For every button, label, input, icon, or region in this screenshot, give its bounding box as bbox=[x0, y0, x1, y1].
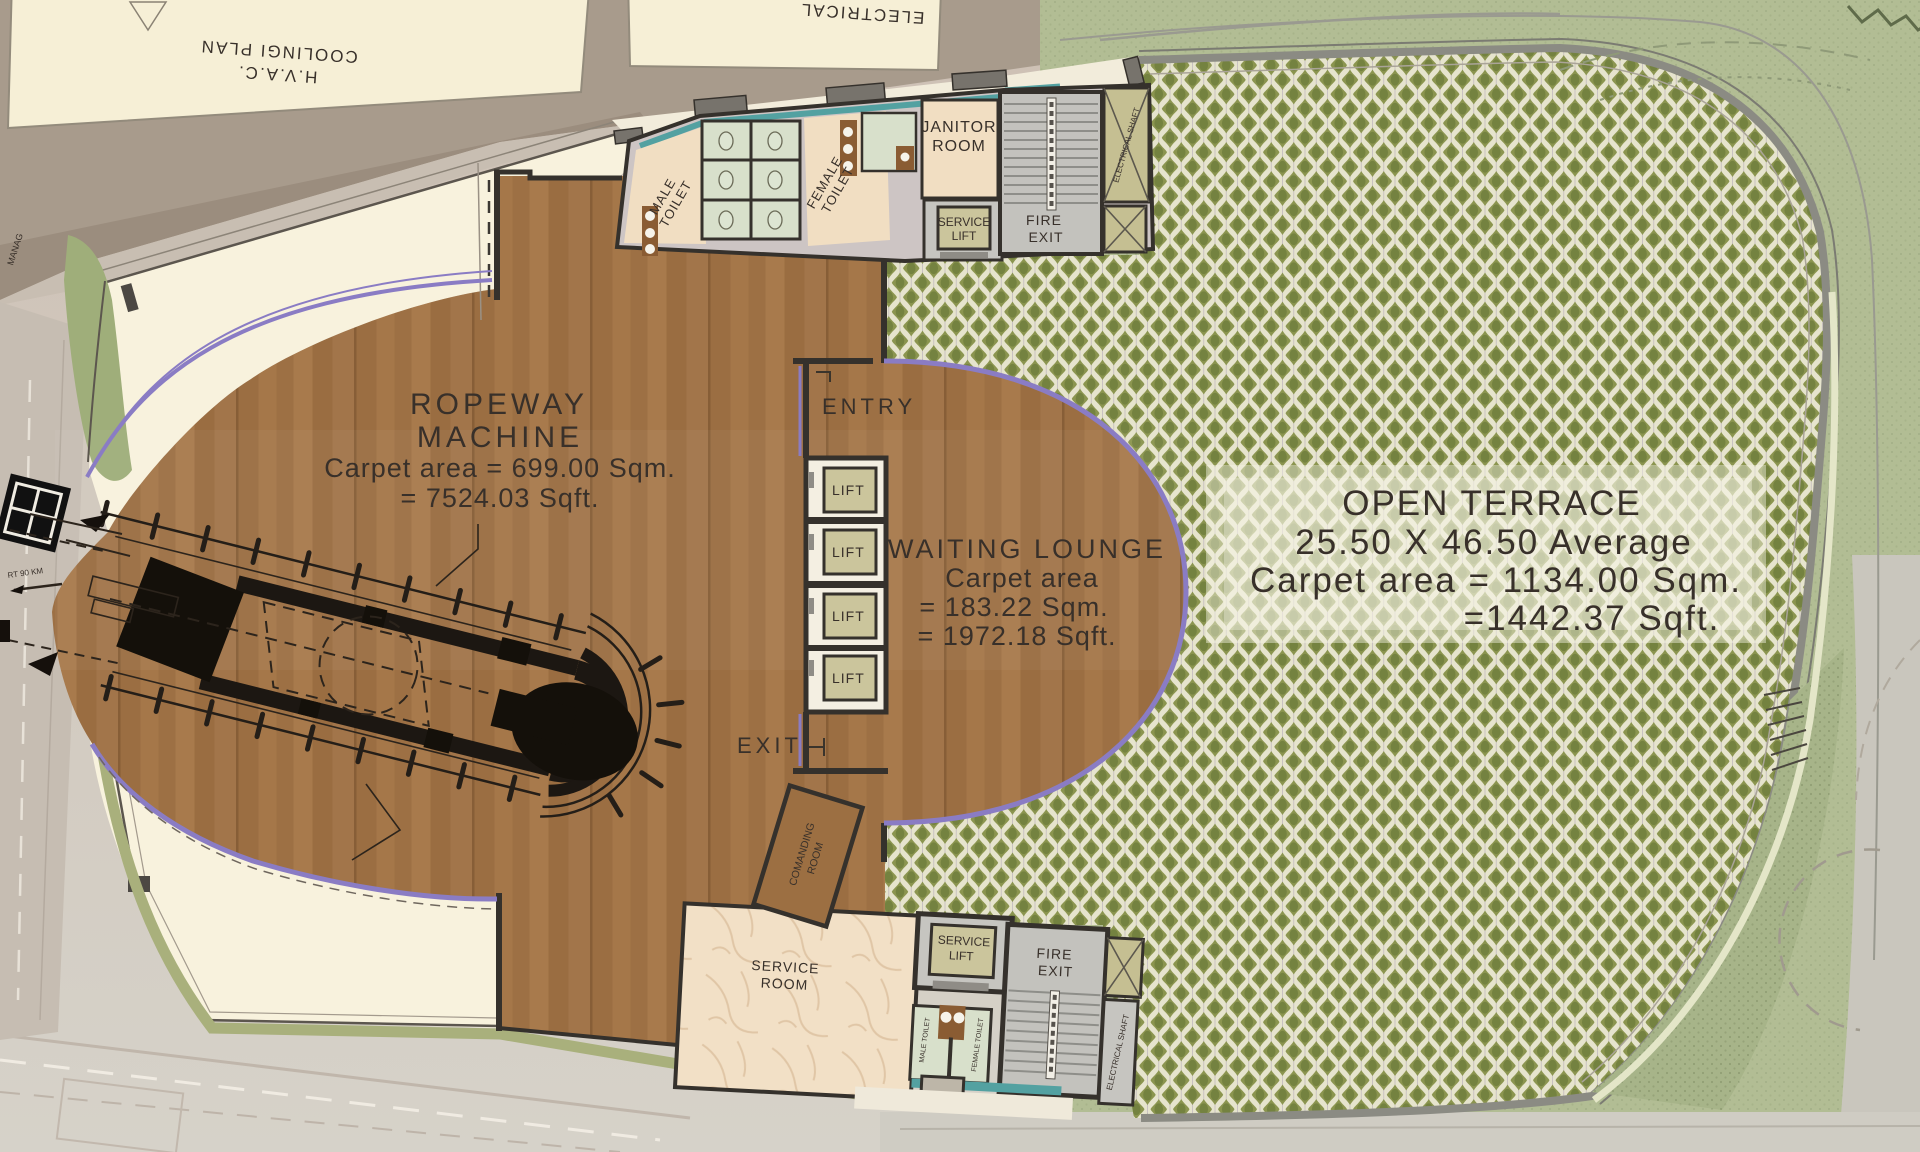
svg-text:WAITING LOUNGE: WAITING LOUNGE bbox=[888, 534, 1166, 564]
svg-text:= 7524.03 Sqft.: = 7524.03 Sqft. bbox=[401, 483, 600, 513]
svg-text:Carpet area = 699.00 Sqm.: Carpet area = 699.00 Sqm. bbox=[324, 453, 675, 483]
svg-text:FIRE: FIRE bbox=[1026, 212, 1062, 228]
svg-text:LIFT: LIFT bbox=[832, 670, 865, 686]
svg-text:LIFT: LIFT bbox=[832, 608, 865, 624]
svg-text:JANITOR: JANITOR bbox=[921, 119, 996, 136]
svg-text:25.50 X 46.50 Average: 25.50 X 46.50 Average bbox=[1295, 523, 1693, 562]
svg-text:SERVICE: SERVICE bbox=[938, 215, 990, 229]
svg-text:FIRE: FIRE bbox=[1036, 945, 1073, 963]
svg-text:Carpet area: Carpet area bbox=[945, 563, 1099, 593]
svg-text:= 1972.18 Sqft.: = 1972.18 Sqft. bbox=[918, 621, 1117, 651]
svg-text:ROOM: ROOM bbox=[932, 138, 986, 155]
svg-text:LIFT: LIFT bbox=[832, 544, 865, 560]
svg-text:LIFT: LIFT bbox=[832, 482, 865, 498]
svg-text:EXIT: EXIT bbox=[737, 733, 802, 758]
svg-text:= 183.22 Sqm.: = 183.22 Sqm. bbox=[919, 592, 1108, 622]
svg-text:MACHINE: MACHINE bbox=[417, 421, 583, 454]
svg-text:LIFT: LIFT bbox=[952, 229, 977, 243]
svg-text:ROOM: ROOM bbox=[760, 974, 808, 992]
svg-text:ENTRY: ENTRY bbox=[822, 394, 916, 419]
svg-text:SERVICE: SERVICE bbox=[937, 933, 990, 950]
svg-text:Carpet area = 1134.00 Sqm.: Carpet area = 1134.00 Sqm. bbox=[1250, 561, 1742, 600]
svg-text:=1442.37 Sqft.: =1442.37 Sqft. bbox=[1464, 599, 1721, 638]
svg-text:LIFT: LIFT bbox=[949, 948, 975, 963]
svg-text:ROPEWAY: ROPEWAY bbox=[410, 388, 588, 421]
svg-text:EXIT: EXIT bbox=[1038, 962, 1074, 980]
svg-text:EXIT: EXIT bbox=[1028, 229, 1063, 245]
svg-text:OPEN TERRACE: OPEN TERRACE bbox=[1342, 484, 1642, 523]
